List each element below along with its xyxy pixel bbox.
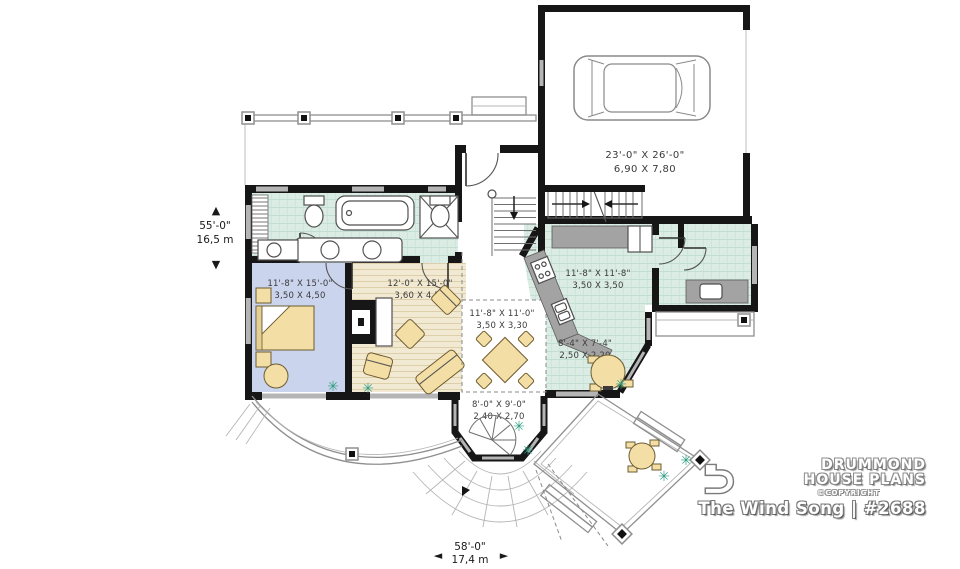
dining-dim-metric: 3,50 X 3,30 (476, 321, 527, 331)
garage-dim-imperial: 23'-0" X 26'-0" (605, 150, 684, 161)
rear-stoop (656, 312, 754, 336)
plant-icon: ✳ (658, 469, 670, 485)
dining-table (476, 331, 535, 390)
refrigerator (628, 226, 652, 252)
floorplan-page: 23'-0" X 26'-0" 6,90 X 7,80 (0, 0, 960, 569)
porch-column (450, 112, 462, 124)
dim-bottom-imperial: 58'-0" (454, 541, 486, 553)
brand-line1: DRUMMOND (804, 458, 926, 473)
dimension-left: ▲ 55'-0" 16,5 m ▼ (197, 204, 234, 271)
bathtub (336, 196, 414, 230)
curved-veranda (226, 396, 462, 464)
garage-dim-metric: 6,90 X 7,80 (614, 164, 676, 175)
dim-left-metric: 16,5 m (197, 234, 234, 246)
window (428, 187, 446, 192)
window (647, 318, 651, 340)
veranda-dim-imperial: 8'-0" X 9'-0" (472, 400, 526, 410)
kitchen-counter (552, 226, 628, 248)
plan-title: The Wind Song | #2688 (698, 499, 926, 518)
stair-wall (545, 185, 645, 192)
window (246, 205, 251, 239)
kitchen-dim-imperial: 11'-8" X 11'-8" (565, 269, 630, 279)
fireplace (346, 298, 392, 346)
garage-window (540, 60, 544, 86)
bedroom-dim-imperial: 11'-8" X 15'-0" (267, 279, 332, 289)
drummond-d-logo-icon (698, 458, 738, 500)
porch-rail (245, 115, 536, 121)
window (352, 187, 384, 192)
bed (256, 306, 314, 350)
window (262, 394, 326, 399)
window (752, 246, 757, 284)
curved-step-fan (413, 451, 587, 527)
brand-logo-block: DRUMMOND HOUSE PLANS ©COPYRIGHT The Wind… (698, 458, 926, 518)
dim-bottom-metric: 17,4 m (452, 554, 489, 566)
garage-right-wall (743, 5, 750, 30)
plant-icon: ✳ (680, 453, 692, 469)
dining-dim-imperial: 11'-8" X 11'-0" (469, 309, 534, 319)
nightstand (256, 288, 271, 303)
car (574, 56, 710, 120)
arrow-down-icon: ▼ (212, 258, 221, 271)
porch-column (298, 112, 310, 124)
chair (264, 364, 288, 388)
stair-arrow (510, 212, 518, 220)
plant-icon: ✳ (362, 381, 374, 397)
arrow-left-icon: ◄ (434, 549, 443, 562)
brand-line2: HOUSE PLANS (804, 473, 926, 488)
laundry-sink (700, 284, 722, 299)
window (556, 392, 598, 397)
dimension-bottom: ◄ 58'-0" 17,4 m ► (434, 541, 509, 566)
kitchen-dim-metric: 3,50 X 3,50 (572, 281, 623, 291)
plant-icon: ✳ (522, 443, 534, 459)
dim-left-imperial: 55'-0" (199, 220, 231, 232)
step-arrow (462, 486, 470, 496)
hidden-steps (536, 464, 608, 546)
arrow-up-icon: ▲ (212, 204, 221, 217)
entry-stoop (472, 97, 526, 115)
plant-icon: ✳ (615, 377, 627, 393)
toilet (430, 196, 450, 227)
bedroom-dim-metric: 3,50 X 4,50 (274, 291, 325, 301)
deck-table (626, 440, 661, 472)
toilet (304, 196, 324, 227)
garage-top-wall (538, 5, 750, 12)
nook-dim-imperial: 8'-4" X 7'-4" (558, 339, 612, 349)
garage-right-wall (743, 153, 750, 224)
arrow-right-icon: ► (500, 549, 509, 562)
stair-arrow (582, 200, 590, 208)
porch-column (242, 112, 254, 124)
window (246, 298, 251, 344)
rear-deck (534, 394, 710, 546)
porch-column (392, 112, 404, 124)
window (256, 187, 288, 192)
vanity (258, 240, 298, 260)
double-vanity (296, 238, 402, 262)
plant-icon: ✳ (327, 379, 339, 395)
newel-post (488, 190, 496, 198)
nightstand (256, 352, 271, 367)
front-porch (242, 97, 536, 185)
turret-veranda: 8'-0" X 9'-0" 2,40 X 2,70 (413, 396, 587, 527)
plant-icon: ✳ (513, 419, 525, 435)
